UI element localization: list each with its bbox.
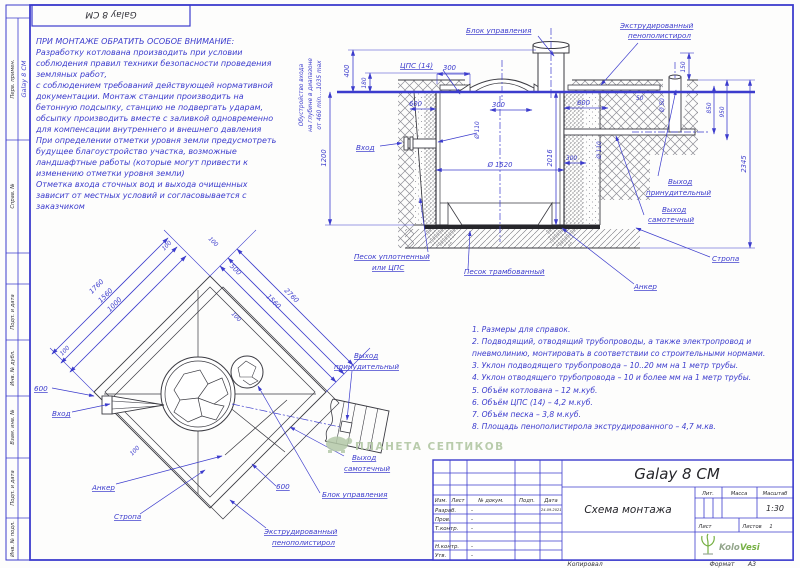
mounting-note-line: бетонную подсыпку, станцию не подвергать… bbox=[36, 103, 263, 112]
tb-scale-value: 1:30 bbox=[766, 504, 784, 513]
inlet-top-view bbox=[102, 396, 164, 414]
strip-perv-primen: Перв. примен. bbox=[10, 60, 16, 99]
mounting-note-line: изменению отметки уровня земли) bbox=[36, 169, 185, 178]
mounting-note-line: зависит от местных условий и согласовыва… bbox=[36, 191, 247, 200]
plan-dim-100-d: 100 bbox=[230, 311, 242, 323]
tb-header-list: Лист bbox=[450, 498, 465, 504]
label-sand-compacted-1: Песок уплотненный bbox=[354, 252, 430, 261]
sheet-footer: Копировал Формат А3 bbox=[567, 561, 756, 568]
logo-text-kolo: Kolo bbox=[719, 543, 740, 553]
tb-row-nkontr: Н.контр. bbox=[435, 544, 459, 550]
base-plate bbox=[424, 225, 600, 229]
label-cps: ЦПС (14) bbox=[400, 61, 433, 70]
label-outlet-gravity-1: Выход bbox=[662, 205, 686, 214]
plan-dim-100-a: 100 bbox=[59, 345, 71, 357]
tb-header-sign: Подп. bbox=[519, 498, 535, 504]
tb-sheets-value: 1 bbox=[769, 524, 772, 530]
tech-note-line: 4. Уклон отводящего трубопровода – 10 и … bbox=[472, 373, 751, 382]
logo-text-vesi: Vesi bbox=[740, 543, 761, 553]
mounting-note-line: ландшафтные работы (которые могут привес… bbox=[35, 158, 248, 167]
tb-row-tkontr: Т.контр. bbox=[435, 526, 458, 532]
mounting-note-line: соблюдения правил техники безопасности п… bbox=[36, 59, 272, 68]
tb-dash-1: - bbox=[471, 508, 473, 514]
tech-note-line: 2. Подводящий, отводящий трубопроводы, а… bbox=[472, 337, 751, 346]
section-dim-1200: 1200 bbox=[320, 149, 328, 166]
plan-dim-600-bottom: 600 bbox=[276, 482, 290, 491]
plan-label-eps-2: пенополистирол bbox=[272, 538, 335, 547]
inlet-depth-note-1: Обустройство входа bbox=[299, 63, 305, 126]
plan-label-outlet-forced-2: принудительный bbox=[334, 362, 399, 371]
tech-note-line: 3. Уклон подводящего трубопровода – 10..… bbox=[472, 361, 738, 370]
plan-dim-2760: 2760 bbox=[282, 287, 300, 305]
control-unit-top-view bbox=[231, 356, 263, 388]
tb-row-prov: Пров. bbox=[435, 517, 451, 523]
section-dim-600-right: 600 bbox=[577, 99, 590, 107]
tb-lit-label: Лит. bbox=[701, 491, 714, 497]
section-dim-110-left: Ø 110 bbox=[474, 121, 481, 140]
tech-note-line: 8. Площадь пенополистирола экструдирован… bbox=[472, 422, 716, 431]
section-dim-300-right: 300 bbox=[566, 156, 577, 162]
plan-dim-1560-right: 1560 bbox=[264, 293, 282, 311]
tech-note-line: 5. Объём котлована – 12 м.куб. bbox=[472, 386, 597, 395]
top-stamp-text: Galay 8 CM bbox=[85, 9, 137, 19]
mounting-note-line: заказчиком bbox=[36, 202, 85, 211]
section-dim-400: 400 bbox=[343, 65, 351, 78]
mounting-note-line: обсыпку производить вместе с заливкой од… bbox=[36, 114, 273, 123]
inlet-depth-note-3: от 460 min....1035 max bbox=[317, 60, 323, 130]
tb-dash-4: - bbox=[471, 544, 473, 550]
tb-mass-label: Масса bbox=[731, 491, 748, 497]
label-sand-tamped: Песок трамбованный bbox=[464, 267, 545, 276]
tb-sheet-label: Лист bbox=[697, 524, 712, 530]
label-inlet: Вход bbox=[356, 143, 375, 152]
section-dim-1520: Ø 1520 bbox=[487, 161, 513, 169]
drawing-sheet: 400 180 1200 2345 150 850 950 50 Ø 50 30… bbox=[0, 0, 800, 568]
plan-label-outlet-gravity-1: Выход bbox=[352, 453, 376, 462]
technical-notes-list: 1. Размеры для справок. 2. Подводящий, о… bbox=[472, 325, 765, 431]
plan-label-control-unit: Блок управления bbox=[322, 490, 388, 499]
section-dim-2345: 2345 bbox=[740, 155, 748, 172]
eps-slab-right bbox=[568, 85, 660, 90]
plan-dim-600-left: 600 bbox=[34, 384, 48, 393]
strip-podp-data-1: Подп. и дата bbox=[10, 294, 16, 329]
plan-dim-100-b: 100 bbox=[161, 240, 173, 252]
plan-label-sling: Стропа bbox=[114, 512, 141, 521]
mounting-notes: ПРИ МОНТАЖЕ ОБРАТИТЬ ОСОБОЕ ВНИМАНИЕ: Ра… bbox=[35, 37, 277, 211]
mounting-note-line: документации. Монтаж станции производить… bbox=[35, 92, 244, 101]
mounting-note-line: земляных работ, bbox=[36, 70, 107, 79]
section-dim-300-top: 300 bbox=[443, 64, 456, 72]
label-outlet-forced-2: принудительный bbox=[646, 188, 711, 197]
tb-dash-3: - bbox=[471, 526, 473, 532]
mounting-note-line: будущее благоустройство участка, возможн… bbox=[36, 147, 237, 156]
tb-product-name: Galay 8 CM bbox=[634, 465, 720, 483]
plan-dim-500: 500 bbox=[228, 262, 243, 277]
tb-header-doc: № докум. bbox=[477, 498, 504, 504]
mounting-note-line: При определении отметки уровня земли пре… bbox=[36, 136, 277, 145]
strip-perv-primen-value: Galay 8 CM bbox=[20, 60, 28, 97]
plan-label-eps-1: Экструдированный bbox=[263, 527, 338, 536]
tb-scale-label: Масштаб bbox=[763, 491, 788, 497]
section-dim-150: 150 bbox=[681, 61, 687, 72]
tb-header-date: Дата bbox=[543, 498, 557, 504]
tb-row-utv: Утв. bbox=[435, 553, 446, 559]
strip-inv-dubl: Инв. № дубл. bbox=[10, 350, 16, 386]
plan-view: 1000 1560 1760 500 1560 2760 100 100 100… bbox=[34, 230, 399, 547]
inlet-pipe bbox=[404, 137, 436, 150]
strip-vzam-inv: Взам. инв. № bbox=[10, 409, 16, 444]
section-dim-110-right: Ø 110 bbox=[596, 141, 603, 160]
tb-row-razrab: Разраб. bbox=[435, 508, 456, 514]
plan-dim-100-c: 100 bbox=[207, 236, 219, 248]
plan-label-inlet: Вход bbox=[52, 409, 71, 418]
label-eps-1: Экструдированный bbox=[619, 21, 694, 30]
label-anchor: Анкер bbox=[633, 282, 657, 291]
strip-inv-podl: Инв. № подл. bbox=[10, 521, 16, 557]
section-dim-50: 50 bbox=[636, 96, 644, 102]
section-dim-50pipe: Ø 50 bbox=[659, 98, 666, 113]
section-dim-950: 950 bbox=[720, 106, 726, 117]
section-dim-300-inner: 300 bbox=[492, 101, 505, 109]
footer-format-label: Формат bbox=[709, 561, 734, 568]
label-outlet-forced-1: Выход bbox=[668, 177, 692, 186]
section-dim-850: 850 bbox=[707, 102, 713, 113]
footer-copied: Копировал bbox=[567, 561, 602, 568]
watermark: ПЛАНЕТА СЕПТИКОВ bbox=[326, 437, 505, 454]
inlet-depth-note-2: на глубине в диапазоне bbox=[308, 58, 314, 132]
tech-note-line: 1. Размеры для справок. bbox=[472, 325, 570, 334]
section-dim-180: 180 bbox=[362, 77, 368, 88]
tb-date-value: 24.09.2021 bbox=[541, 508, 562, 512]
tb-sheets-label: Листов bbox=[741, 524, 761, 530]
mounting-note-line: Разработку котлована производить при усл… bbox=[36, 48, 242, 57]
turtle-icon bbox=[326, 437, 352, 454]
tech-note-line: 6. Объём ЦПС (14) – 4,2 м.куб. bbox=[472, 398, 593, 407]
tb-dash-2: - bbox=[471, 517, 473, 523]
mounting-note-line: Отметка входа сточных вод и выхода очище… bbox=[36, 180, 248, 189]
section-dim-600-left: 600 bbox=[409, 100, 422, 108]
footer-format-value: А3 bbox=[747, 561, 756, 568]
mounting-note-line: для компенсации внутреннего и внешнего д… bbox=[35, 125, 262, 134]
plan-dim-100-e: 100 bbox=[129, 445, 141, 457]
strip-sprav-no: Справ. № bbox=[10, 183, 16, 208]
drawing-canvas: 400 180 1200 2345 150 850 950 50 Ø 50 30… bbox=[0, 0, 800, 568]
plan-label-outlet-gravity-2: самотечный bbox=[344, 464, 390, 473]
label-sand-compacted-2: или ЦПС bbox=[372, 263, 404, 272]
label-control-unit: Блок управления bbox=[466, 26, 532, 35]
tank-top-view bbox=[161, 357, 235, 431]
tb-doc-name: Схема монтажа bbox=[584, 504, 671, 516]
watermark-text: ПЛАНЕТА СЕПТИКОВ bbox=[355, 441, 505, 453]
mounting-notes-title: ПРИ МОНТАЖЕ ОБРАТИТЬ ОСОБОЕ ВНИМАНИЕ: bbox=[36, 37, 235, 46]
plan-label-outlet-forced-1: Выход bbox=[354, 351, 378, 360]
mounting-note-line: с соблюдением требований действующей нор… bbox=[36, 81, 273, 90]
label-sling: Стропа bbox=[712, 254, 739, 263]
tb-dash-5: - bbox=[471, 553, 473, 559]
strip-podp-data-2: Подп. и дата bbox=[10, 470, 16, 505]
tech-note-line: 7. Объём песка – 3,8 м.куб. bbox=[472, 410, 581, 419]
section-view: 400 180 1200 2345 150 850 950 50 Ø 50 30… bbox=[299, 21, 755, 291]
tech-note-line: пневмолинию, монтировать в соответствии … bbox=[472, 349, 765, 358]
tb-header-izm: Изм. bbox=[435, 498, 447, 504]
plan-label-anchor: Анкер bbox=[91, 483, 115, 492]
title-block: Изм. Лист № докум. Подп. Дата Разраб. Пр… bbox=[433, 460, 793, 560]
label-eps-2: пенополистирол bbox=[628, 31, 691, 40]
label-outlet-gravity-2: самотечный bbox=[648, 215, 694, 224]
section-dim-2016: 2016 bbox=[546, 149, 554, 167]
